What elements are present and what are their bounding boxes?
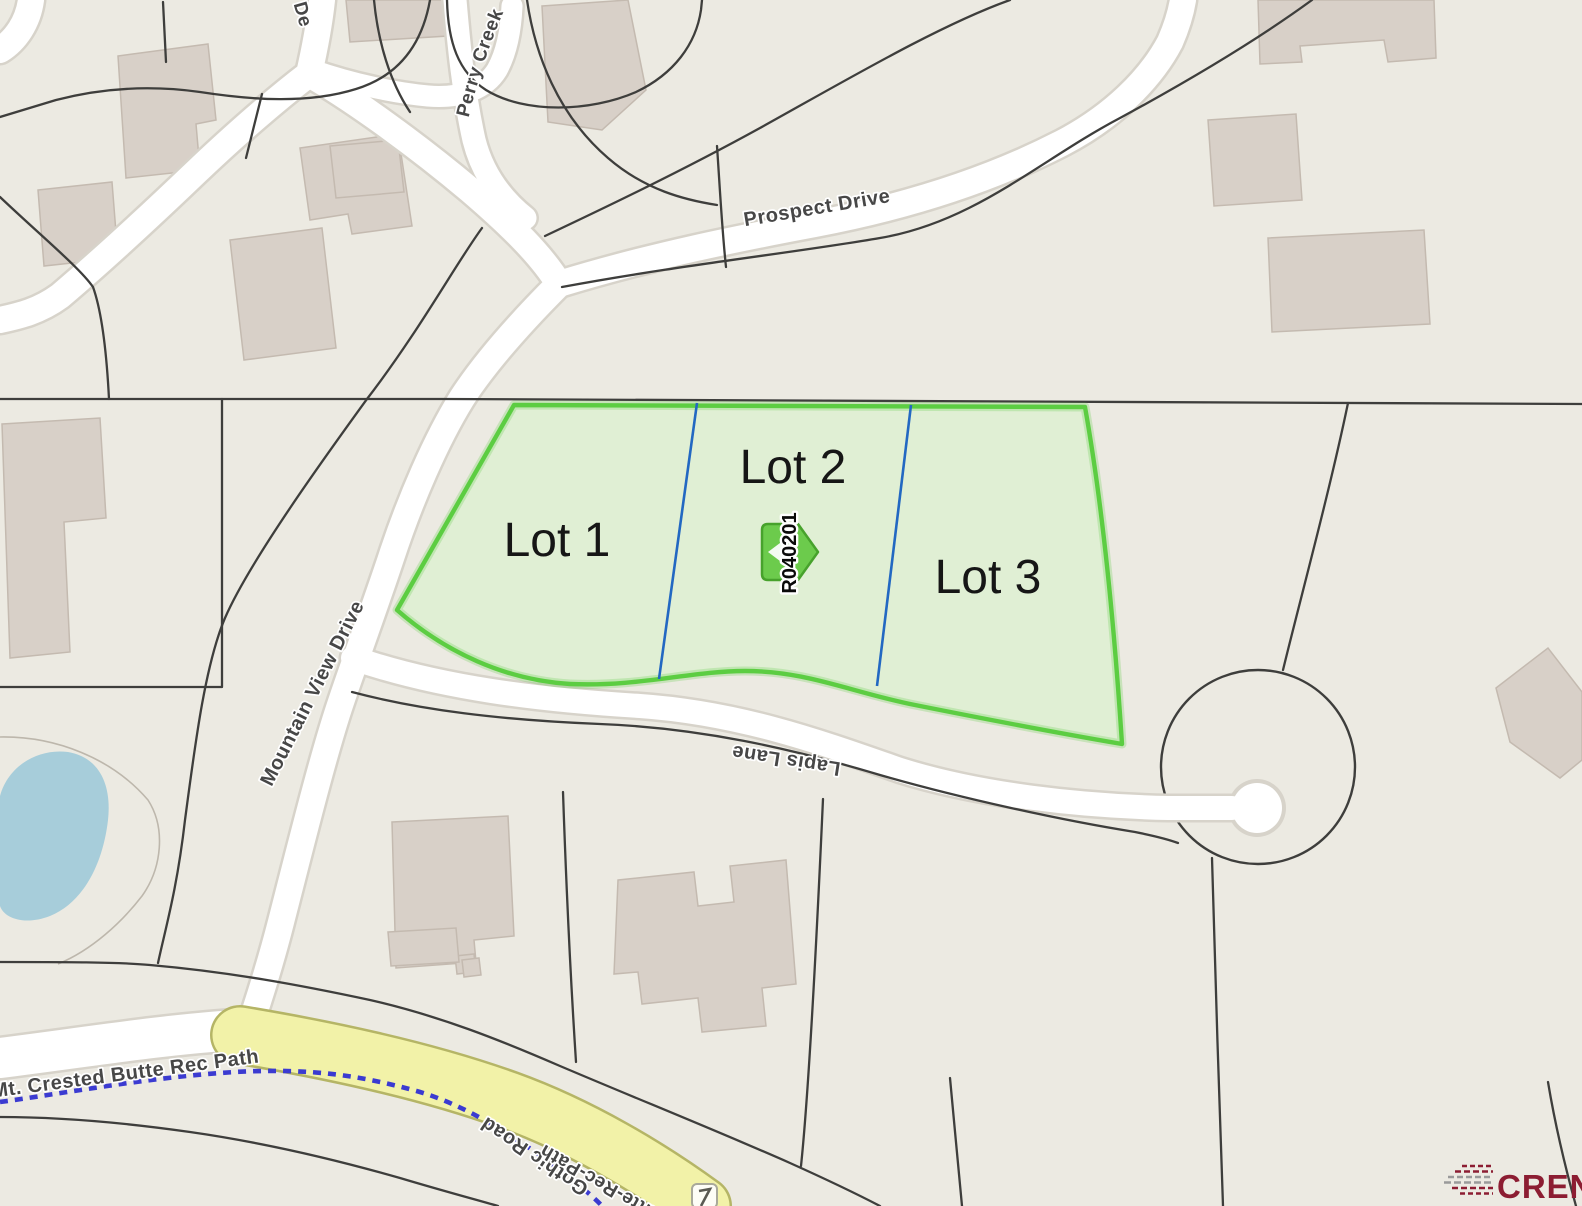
building-footprint [462,958,481,977]
lot-label-2: Lot 2 [740,441,847,494]
route-shield-icon [692,1184,717,1206]
building-footprint [388,928,459,966]
building-footprint [346,0,452,42]
lot-label-1: Lot 1 [504,514,611,567]
cren-watermark-text: CREN [1497,1168,1582,1205]
building-footprint [1208,114,1302,206]
cul-de-sac-bulb [1232,783,1282,833]
building-footprint [230,228,336,360]
parcel-map: De Perry Creek S Prospect Drive Mountain… [0,0,1582,1206]
map-canvas[interactable]: De Perry Creek S Prospect Drive Mountain… [0,0,1582,1206]
lot-label-3: Lot 3 [935,551,1042,604]
parcel-marker-label: R040201 [779,512,801,593]
building-footprint [1268,230,1430,332]
